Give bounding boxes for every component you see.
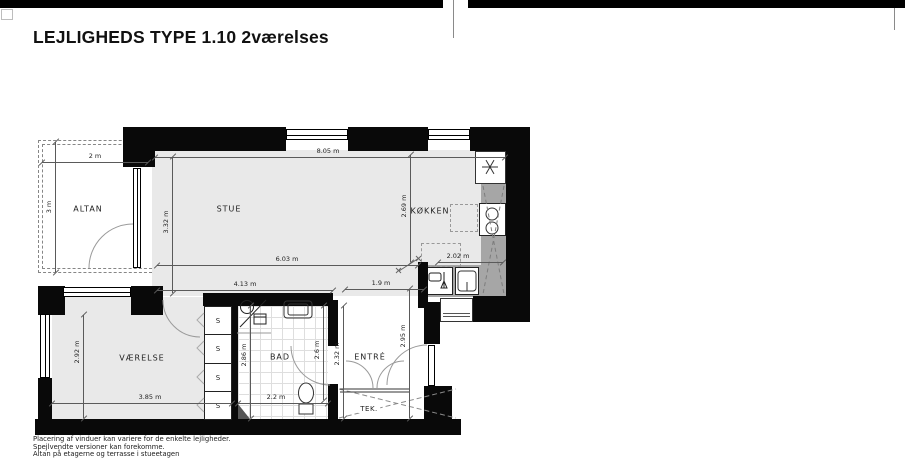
dimension-line xyxy=(323,306,324,400)
dimension-line xyxy=(52,403,232,404)
footer-line: Altan på etagerne og terrasse i stueetag… xyxy=(33,451,231,459)
dim-altan-width: 2 m xyxy=(89,152,102,160)
dimension-line xyxy=(55,142,56,272)
dim-vaerelse-depth: 2.92 m xyxy=(73,341,81,364)
page: { "header": { "title": "LEJLIGHEDS TYPE … xyxy=(0,0,905,460)
dim-hall-width: 1.9 m xyxy=(372,279,391,287)
dimension-line xyxy=(83,315,84,418)
dimension-line xyxy=(345,289,424,290)
dim-stue-width-top: 8.05 m xyxy=(317,147,340,155)
room-label-tek: TEK. xyxy=(358,405,380,413)
dimension-line xyxy=(172,157,173,293)
dim-vaerelse-width: 3.85 m xyxy=(139,393,162,401)
dimension-line xyxy=(157,265,418,266)
vaerelse-door-arc xyxy=(163,300,200,337)
room-label-stue: STUE xyxy=(217,205,242,214)
dim-altan-depth: 3 m xyxy=(45,201,53,214)
tek-closet-door-arc-right xyxy=(377,361,404,388)
bad-corner-triangle xyxy=(238,404,250,419)
room-label-vaerelse: VÆRELSE xyxy=(119,354,164,363)
dim-bad-width: 2.2 m xyxy=(267,393,286,401)
vanity-sink-icon xyxy=(284,301,312,318)
plan-overlay xyxy=(0,0,905,460)
room-label-altan: ALTAN xyxy=(73,205,103,214)
dim-bad-depth: 2.86 m xyxy=(240,344,248,367)
dim-stue-width-lower: 4.13 m xyxy=(234,280,257,288)
altan-door-arc xyxy=(89,224,133,268)
dim-stue-width-mid: 6.03 m xyxy=(276,255,299,263)
dim-entre-depth-right: 2.95 m xyxy=(399,325,407,348)
dimension-line xyxy=(42,162,148,163)
dim-kokken-depth: 2.69 m xyxy=(400,195,408,218)
room-label-kokken: KØKKEN xyxy=(410,207,449,216)
wardrobe-chevrons xyxy=(197,313,204,412)
entrance-door-arc xyxy=(387,345,427,385)
dim-entre-depth-left: 2.32 m xyxy=(333,343,341,366)
extractor-asterisk-icon xyxy=(482,160,498,174)
toilet-icon xyxy=(299,383,314,414)
kitchen-sink-icon xyxy=(458,271,476,291)
dimension-line xyxy=(155,157,505,158)
dimension-line xyxy=(238,403,328,404)
dim-stue-depth: 3.32 m xyxy=(162,211,170,234)
tek-closet-door-arc-left xyxy=(346,361,373,388)
dishwasher-faucet-icon xyxy=(429,272,447,288)
room-label-bad: BAD xyxy=(270,353,290,362)
footer-notes: Placering af vinduer kan variere for de … xyxy=(33,436,231,459)
dimension-line xyxy=(438,262,503,263)
floor-plan: S S S S xyxy=(0,0,905,460)
dimension-line xyxy=(157,290,333,291)
dimension-line xyxy=(250,306,251,418)
bad-door-arc xyxy=(291,346,330,385)
dimension-line xyxy=(409,289,410,418)
door-arcs xyxy=(89,224,427,388)
closet-front-lines xyxy=(340,389,410,392)
dim-kokken-width: 2.02 m xyxy=(447,252,470,260)
counter-dashed-lines xyxy=(483,186,504,294)
dim-bad-inner: 2.6 m xyxy=(313,341,321,360)
dimension-line xyxy=(343,306,344,418)
tek-cross-icon xyxy=(339,389,456,418)
room-label-entre: ENTRÉ xyxy=(354,353,386,362)
